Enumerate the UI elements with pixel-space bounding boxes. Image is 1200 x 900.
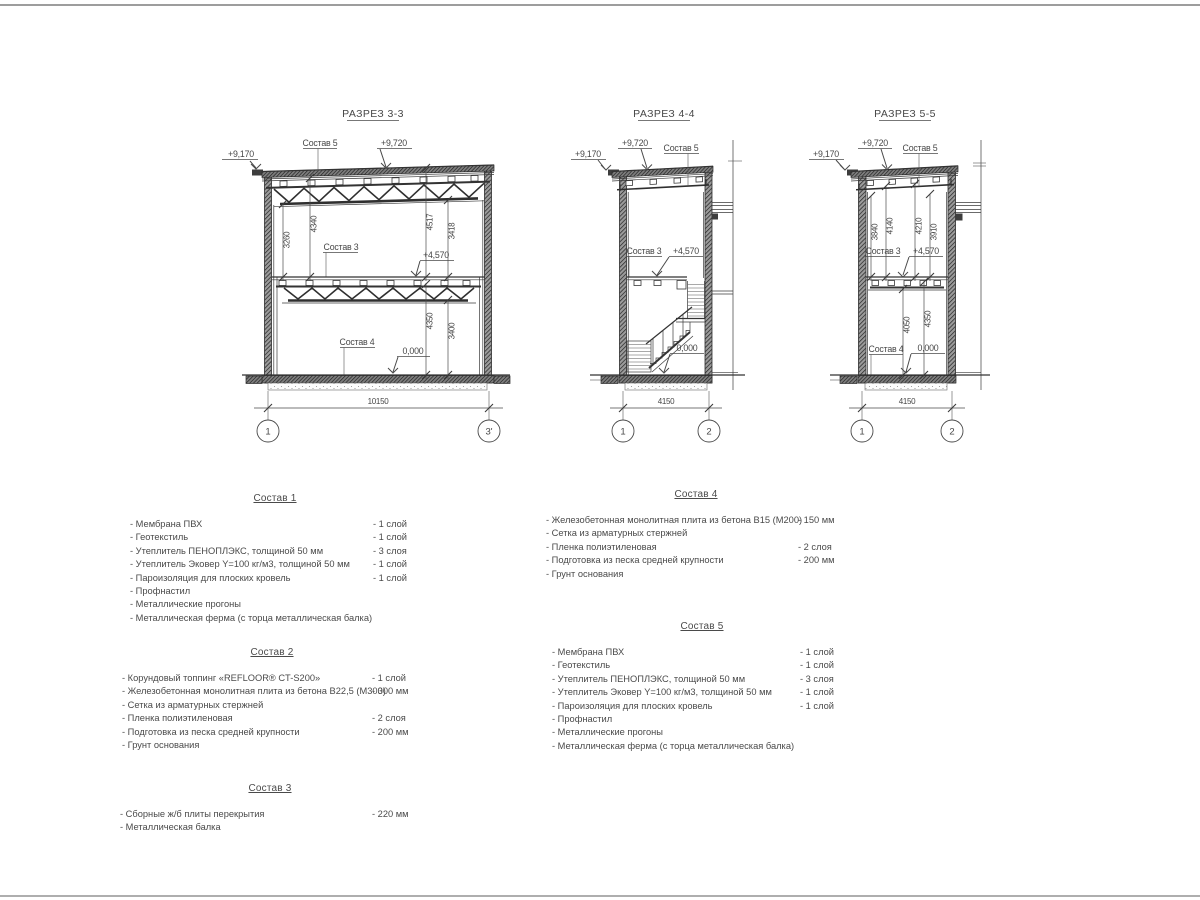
composition-item-value: - 2 слоя: [798, 541, 832, 554]
composition-item-name: - Геотекстиль: [130, 531, 373, 544]
composition-item: - Сетка из арматурных стержней: [546, 527, 846, 540]
composition-item-name: - Сетка из арматурных стержней: [122, 699, 372, 712]
composition-item-name: - Утеплитель Эковер Y=100 кг/м3, толщино…: [552, 686, 800, 699]
composition-item-value: - 1 слой: [800, 659, 834, 672]
drawing-sheet: РАЗРЕЗ 3-3: [0, 0, 1200, 900]
composition-item-name: - Мембрана ПВХ: [552, 646, 800, 659]
composition-item-value: - 3 слоя: [373, 545, 407, 558]
mid-floor: [627, 277, 687, 289]
composition-item: - Профнастил: [130, 585, 420, 598]
composition-list-3: Состав 3 - Сборные ж/б плиты перекрытия …: [120, 783, 420, 835]
composition-list-5: Состав 5 - Мембрана ПВХ - 1 слой - Геоте…: [552, 621, 852, 753]
composition-title: Состав 2: [122, 647, 422, 659]
composition-item: - Подготовка из песка средней крупности …: [546, 554, 846, 567]
composition-item: - Пленка полиэтиленовая - 2 слоя: [122, 712, 422, 725]
section-5-5: РАЗРЕЗ 5-5: [809, 108, 990, 442]
composition-item-name: - Пароизоляция для плоских кровель: [130, 572, 373, 585]
composition-item: - Сетка из арматурных стержней: [122, 699, 422, 712]
composition-item-name: - Грунт основания: [546, 568, 798, 581]
composition-item-name: - Пароизоляция для плоских кровель: [552, 700, 800, 713]
composition-item: - Металлическая балка: [120, 821, 420, 834]
composition-list-2: Состав 2 - Корундовый топпинг «REFLOOR® …: [122, 647, 422, 752]
composition-item-value: - 300 мм: [372, 685, 409, 698]
composition-item: - Геотекстиль - 1 слой: [130, 531, 420, 544]
dim-label: 3418: [448, 222, 457, 239]
composition-item: - Железобетонная монолитная плита из бет…: [546, 514, 846, 527]
elevation-label: +4,570: [673, 246, 699, 256]
axis-label: 2: [706, 427, 711, 438]
composition-title: Состав 4: [546, 489, 846, 501]
composition-item-value: - 1 слой: [373, 531, 407, 544]
composition-item-name: - Сборные ж/б плиты перекрытия: [120, 808, 372, 821]
composition-item: - Сборные ж/б плиты перекрытия - 220 мм: [120, 808, 420, 821]
composition-item: - Утеплитель ПЕНОПЛЭКС, толщиной 50 мм -…: [552, 673, 852, 686]
composition-item-value: - 150 мм: [798, 514, 835, 527]
ground-slab: [590, 375, 745, 390]
sections-drawing: РАЗРЕЗ 3-3: [0, 0, 1200, 460]
composition-item: - Металлические прогоны: [130, 598, 420, 611]
composition-item: - Пароизоляция для плоских кровель - 1 с…: [552, 700, 852, 713]
composition-item: - Мембрана ПВХ - 1 слой: [130, 518, 420, 531]
elevation-label: +9,720: [862, 138, 888, 148]
layer-ref-label: Состав 5: [664, 143, 699, 153]
axis-label: 2: [949, 427, 954, 438]
composition-item-name: - Пленка полиэтиленовая: [546, 541, 798, 554]
composition-item-value: - 3 слоя: [800, 673, 834, 686]
layer-ref-label: Состав 3: [866, 246, 901, 256]
adjacent-structure: [712, 140, 742, 390]
mid-floor-truss: [272, 277, 485, 303]
dim-label: 4350: [426, 312, 435, 329]
composition-item-name: - Утеплитель Эковер Y=100 кг/м3, толщино…: [130, 558, 373, 571]
section-4-4: РАЗРЕЗ 4-4: [571, 108, 745, 442]
composition-list-1: Состав 1 - Мембрана ПВХ - 1 слой - Геоте…: [130, 493, 420, 625]
elevation-label: +9,720: [622, 138, 648, 148]
layer-ref-label: Состав 3: [627, 246, 662, 256]
axis-label: 1: [265, 427, 270, 438]
elevation-label: +9,720: [381, 138, 407, 148]
composition-item-name: - Подготовка из песка средней крупности: [122, 726, 372, 739]
composition-item: - Грунт основания: [546, 568, 846, 581]
composition-item: - Профнастил: [552, 713, 852, 726]
ground-slab: [830, 375, 990, 390]
composition-item: - Грунт основания: [122, 739, 422, 752]
composition-item-name: - Мембрана ПВХ: [130, 518, 373, 531]
composition-item-value: - 1 слой: [800, 646, 834, 659]
dim-label: 4140: [886, 217, 895, 234]
dim-label: 3840: [871, 223, 880, 240]
elevation-label: 0,000: [917, 343, 938, 353]
roof-assembly: [612, 166, 713, 190]
composition-item: - Мембрана ПВХ - 1 слой: [552, 646, 852, 659]
composition-item-name: - Геотекстиль: [552, 659, 800, 672]
dim-label: 4350: [924, 310, 933, 327]
staircase: [627, 281, 705, 372]
layer-ref-label: Состав 4: [340, 337, 375, 347]
width-dimension-and-axes: 4150 1 2: [849, 391, 965, 442]
width-dimension-and-axes: 4150 1 2: [610, 391, 722, 442]
dim-label: 4210: [915, 217, 924, 234]
width-dim-label: 4150: [658, 397, 675, 406]
dim-label: 4340: [310, 215, 319, 232]
composition-item-name: - Металлические прогоны: [130, 598, 373, 611]
composition-item: - Утеплитель ПЕНОПЛЭКС, толщиной 50 мм -…: [130, 545, 420, 558]
layer-ref-label: Состав 5: [903, 143, 938, 153]
width-dimension-and-axes: 10150 1 3': [254, 391, 503, 442]
composition-item: - Геотекстиль - 1 слой: [552, 659, 852, 672]
composition-item-value: - 200 мм: [798, 554, 835, 567]
composition-item-value: - 1 слой: [373, 558, 407, 571]
composition-item: - Подготовка из песка средней крупности …: [122, 726, 422, 739]
composition-item-name: - Металлическая балка: [120, 821, 372, 834]
composition-item: - Металлическая ферма (с торца металличе…: [552, 740, 852, 753]
composition-item-name: - Металлические прогоны: [552, 726, 800, 739]
dim-label: 4050: [903, 316, 912, 333]
composition-item-value: - 1 слой: [800, 686, 834, 699]
layer-ref-label: Состав 4: [869, 344, 904, 354]
composition-item-value: - 1 слой: [372, 672, 406, 685]
width-dim-label: 4150: [899, 397, 916, 406]
elevation-label: +9,170: [228, 149, 254, 159]
composition-item: - Корундовый топпинг «REFLOOR® CT-S200» …: [122, 672, 422, 685]
composition-item-name: - Профнастил: [130, 585, 373, 598]
composition-item-value: - 2 слоя: [372, 712, 406, 725]
composition-list-4: Состав 4 - Железобетонная монолитная пли…: [546, 489, 846, 581]
adjacent-structure: [956, 140, 987, 390]
composition-item-name: - Грунт основания: [122, 739, 372, 752]
page-bottom-rule: [0, 895, 1200, 897]
dim-label: 4517: [426, 213, 435, 230]
width-dim-label: 10150: [368, 397, 390, 406]
dim-label: 3910: [930, 223, 939, 240]
composition-item: - Металлические прогоны: [552, 726, 852, 739]
dim-label: 3260: [283, 231, 292, 248]
composition-item-name: - Металлическая ферма (с торца металличе…: [130, 612, 373, 625]
elevation-label: 0,000: [676, 343, 697, 353]
section-title: РАЗРЕЗ 3-3: [342, 108, 404, 120]
composition-item: - Пароизоляция для плоских кровель - 1 с…: [130, 572, 420, 585]
elevation-label: +4,570: [423, 250, 449, 260]
composition-item: - Железобетонная монолитная плита из бет…: [122, 685, 422, 698]
section-3-3: РАЗРЕЗ 3-3: [222, 108, 510, 442]
composition-item-name: - Корундовый топпинг «REFLOOR® CT-S200»: [122, 672, 372, 685]
composition-title: Состав 1: [130, 493, 420, 505]
composition-title: Состав 5: [552, 621, 852, 633]
composition-item-name: - Подготовка из песка средней крупности: [546, 554, 798, 567]
axis-label: 1: [859, 427, 864, 438]
layer-ref-label: Состав 3: [324, 242, 359, 252]
composition-item: - Металлическая ферма (с торца металличе…: [130, 612, 420, 625]
composition-item: - Пленка полиэтиленовая - 2 слоя: [546, 541, 846, 554]
layer-ref-label: Состав 5: [303, 138, 338, 148]
dim-label: 3400: [448, 322, 457, 339]
composition-item-value: - 200 мм: [372, 726, 409, 739]
roof-assembly: [851, 166, 958, 190]
elevation-label: 0,000: [402, 346, 423, 356]
composition-item: - Утеплитель Эковер Y=100 кг/м3, толщино…: [130, 558, 420, 571]
composition-item-value: - 220 мм: [372, 808, 409, 821]
composition-item: - Утеплитель Эковер Y=100 кг/м3, толщино…: [552, 686, 852, 699]
elevation-label: +9,170: [575, 149, 601, 159]
composition-item-value: - 1 слой: [373, 518, 407, 531]
composition-item-name: - Утеплитель ПЕНОПЛЭКС, толщиной 50 мм: [130, 545, 373, 558]
section-title: РАЗРЕЗ 4-4: [633, 108, 695, 120]
composition-item-name: - Металлическая ферма (с торца металличе…: [552, 740, 800, 753]
composition-item-name: - Сетка из арматурных стержней: [546, 527, 798, 540]
elevation-label: +4,570: [913, 246, 939, 256]
mid-floor: [866, 277, 948, 290]
composition-item-name: - Утеплитель ПЕНОПЛЭКС, толщиной 50 мм: [552, 673, 800, 686]
composition-item-name: - Железобетонная монолитная плита из бет…: [546, 514, 798, 527]
composition-item-value: - 1 слой: [800, 700, 834, 713]
elevation-label: +9,170: [813, 149, 839, 159]
axis-label: 1: [620, 427, 625, 438]
composition-title: Состав 3: [120, 783, 420, 795]
composition-item-value: - 1 слой: [373, 572, 407, 585]
section-title: РАЗРЕЗ 5-5: [874, 108, 936, 120]
axis-label: 3': [485, 427, 492, 438]
composition-item-name: - Железобетонная монолитная плита из бет…: [122, 685, 372, 698]
roof-assembly: [262, 165, 494, 207]
ground-slab: [242, 375, 510, 390]
composition-item-name: - Профнастил: [552, 713, 800, 726]
composition-item-name: - Пленка полиэтиленовая: [122, 712, 372, 725]
